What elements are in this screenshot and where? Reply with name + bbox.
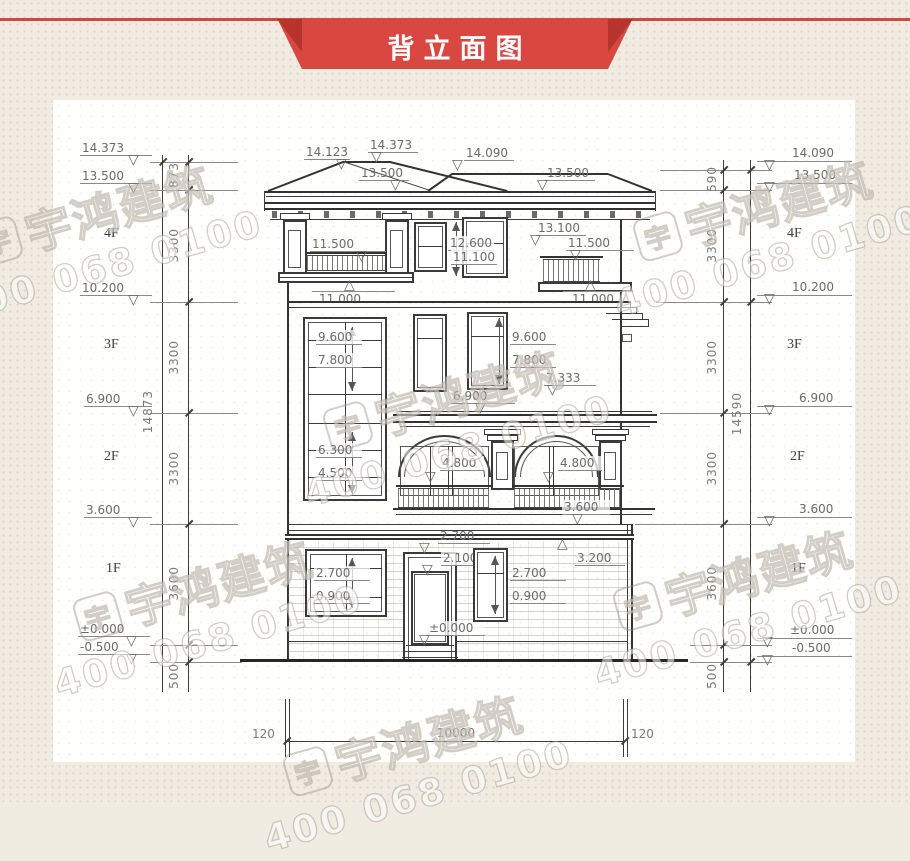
window-inner — [417, 318, 443, 388]
dim-value: 873 — [167, 162, 181, 188]
floor-label: 1F — [106, 561, 121, 577]
level-label: 3.200 — [575, 551, 625, 566]
dim-line — [287, 741, 625, 742]
level-label: 13.100 — [536, 221, 586, 236]
floor-label: 2F — [790, 449, 805, 465]
arrow-up-icon — [491, 556, 499, 565]
level-triangle-icon — [762, 654, 773, 666]
level-label: 0.900 — [314, 589, 370, 604]
eave-dentils — [272, 211, 648, 218]
level-label: 4.500 — [316, 466, 362, 481]
dim-line — [188, 155, 189, 692]
pillar-panel — [604, 452, 616, 480]
extension-line — [627, 699, 628, 757]
level-triangle-icon — [537, 179, 548, 191]
column-panel — [288, 230, 301, 268]
level-label: 2.700 — [314, 566, 370, 581]
floor-band — [287, 301, 621, 303]
dim-value: 120 — [631, 727, 654, 741]
level-triangle-icon — [764, 515, 775, 527]
level-triangle-icon — [128, 154, 139, 166]
level-triangle-icon — [425, 471, 436, 483]
level-label: -0.500 — [790, 641, 833, 656]
dim-value: 120 — [252, 727, 275, 741]
level-label: 9.600 — [510, 330, 556, 345]
eave-edge — [655, 191, 656, 211]
level-label: 13.500 — [359, 166, 409, 181]
level-triangle-icon — [419, 634, 430, 646]
level-label: 10.200 — [790, 280, 836, 295]
dim-value: 590 — [705, 166, 719, 192]
window-transom — [417, 338, 443, 339]
dim-line — [162, 155, 163, 692]
page-title: 背立面图 — [277, 27, 633, 66]
level-label: 14.090 — [790, 146, 836, 161]
level-triangle-icon — [475, 402, 486, 414]
level-line — [690, 645, 772, 646]
column-capital — [280, 213, 310, 220]
cornice-step — [612, 319, 649, 320]
level-label: 6.300 — [316, 443, 362, 458]
cornice-step — [595, 301, 631, 303]
level-triangle-icon — [128, 182, 139, 194]
arrow-down-icon — [452, 267, 460, 276]
level-triangle-icon — [764, 404, 775, 416]
level-line — [150, 413, 238, 414]
extension-line — [285, 699, 286, 757]
level-label: 2.700 — [510, 566, 566, 581]
level-label: 4.800 — [440, 456, 484, 471]
string-course — [288, 641, 628, 642]
level-label: 4.800 — [558, 456, 602, 471]
level-triangle-icon — [764, 293, 775, 305]
slab-line — [400, 426, 650, 427]
railing-rail — [396, 485, 491, 487]
dim-value: 500 — [167, 663, 181, 689]
dim-line — [750, 160, 751, 692]
level-label: 11.000 — [570, 292, 616, 307]
dim-value: 10000 — [287, 726, 625, 740]
ground-line — [240, 659, 688, 662]
dim-value: 3300 — [167, 228, 181, 263]
eave-line — [264, 191, 656, 193]
window-inner — [418, 226, 443, 268]
level-label: 7.800 — [316, 353, 362, 368]
slab-line — [398, 411, 652, 412]
column-panel — [390, 230, 403, 268]
column-capital — [382, 213, 412, 220]
level-label: 10.200 — [80, 281, 152, 296]
dim-value: 3300 — [705, 228, 719, 263]
window-transom — [477, 573, 504, 574]
eave-edge — [264, 191, 265, 211]
level-line — [150, 645, 238, 646]
eave-line — [270, 219, 650, 220]
level-label: 2.700 — [438, 529, 490, 544]
slab-line — [393, 508, 655, 510]
level-triangle-icon — [356, 250, 367, 262]
level-triangle-icon — [764, 181, 775, 193]
floor-label: 2F — [104, 449, 119, 465]
dim-value: 3300 — [167, 340, 181, 375]
level-label: 6.900 — [84, 392, 152, 407]
balcony-roof-slab — [393, 414, 657, 423]
arrow-down-icon — [491, 605, 499, 614]
level-line — [656, 302, 772, 303]
level-label: 7.800 — [510, 353, 556, 368]
level-label: 12.600 — [448, 236, 494, 251]
level-line — [150, 302, 238, 303]
dim-value: 3300 — [167, 451, 181, 486]
level-triangle-icon — [762, 636, 773, 648]
level-triangle-icon — [547, 384, 558, 396]
pillar-panel — [496, 452, 508, 480]
level-label: 3.600 — [84, 503, 152, 518]
dim-line — [723, 160, 724, 692]
level-label: 14.373 — [80, 141, 152, 156]
cornice-bracket — [622, 334, 632, 342]
level-label: 11.500 — [310, 237, 386, 252]
level-label: 13.500 — [792, 168, 838, 183]
level-label: 11.100 — [451, 250, 497, 265]
railing-rail — [512, 485, 624, 487]
cornice-step — [600, 307, 637, 308]
dim-value: 3600 — [167, 566, 181, 601]
cornice-step — [606, 313, 643, 314]
level-triangle-icon — [530, 234, 541, 246]
level-label: ±0.000 — [788, 623, 836, 638]
level-triangle-icon — [390, 179, 401, 191]
level-triangle-icon — [452, 159, 463, 171]
level-line — [690, 662, 772, 663]
level-triangle-icon — [764, 159, 775, 171]
wall-corner — [631, 524, 633, 661]
level-triangle-icon — [570, 249, 581, 261]
floor-label: 1F — [791, 561, 806, 577]
arrow-down-icon — [348, 382, 356, 391]
door-step — [404, 651, 456, 652]
floor-band — [287, 307, 621, 308]
watermark-logo-icon: 宇 — [0, 214, 25, 268]
level-label: 6.900 — [797, 391, 835, 406]
railing-rail — [305, 252, 387, 254]
level-triangle-icon — [371, 151, 382, 163]
eave-line — [266, 196, 654, 197]
level-triangle-icon — [126, 653, 137, 665]
level-label: ±0.000 — [427, 621, 485, 636]
railing — [398, 488, 489, 508]
window-transom — [418, 246, 443, 247]
dim-total: 14590 — [730, 392, 744, 435]
level-line — [150, 662, 242, 663]
level-triangle-icon — [128, 294, 139, 306]
level-label: 3.600 — [797, 502, 835, 517]
dim-value: 500 — [705, 663, 719, 689]
slab-line — [396, 514, 652, 515]
level-label: 11.000 — [317, 292, 363, 307]
level-line — [635, 524, 772, 525]
level-triangle-icon — [344, 279, 355, 291]
arrow-down-icon — [495, 375, 503, 384]
floor-label: 3F — [787, 337, 802, 353]
level-label: 9.600 — [316, 330, 362, 345]
eave-band — [264, 202, 656, 210]
level-label: -0.500 — [78, 640, 150, 655]
dim-value: 3300 — [705, 451, 719, 486]
dim-value: 3600 — [705, 566, 719, 601]
level-triangle-icon — [128, 516, 139, 528]
door-step — [406, 645, 454, 646]
level-triangle-icon — [585, 279, 596, 291]
level-line — [660, 413, 772, 414]
level-triangle-icon — [419, 542, 430, 554]
arrow-up-icon — [495, 318, 503, 327]
level-label: 0.900 — [510, 589, 566, 604]
level-label: 3.600 — [562, 500, 610, 515]
level-label: 13.500 — [80, 169, 152, 184]
arrow-up-icon — [452, 222, 460, 231]
cornice-step — [620, 326, 649, 327]
belt-line — [287, 524, 632, 525]
dim-value: 3300 — [705, 340, 719, 375]
floor-label: 4F — [787, 226, 802, 242]
level-line — [150, 524, 238, 525]
floor-label: 3F — [104, 337, 119, 353]
level-label: 14.090 — [464, 146, 514, 161]
level-triangle-icon — [128, 405, 139, 417]
level-triangle-icon — [543, 471, 554, 483]
floor-label: 4F — [104, 226, 119, 242]
level-triangle-icon — [336, 158, 347, 170]
arrow-down-icon — [348, 485, 356, 494]
level-label: 13.500 — [545, 166, 595, 181]
door-step — [402, 657, 458, 658]
railing — [307, 255, 385, 271]
level-triangle-icon — [422, 564, 433, 576]
page-background: 背立面图 宇宇鸿建筑 400 068 0100 宇宇鸿建筑 400 068 01… — [0, 0, 910, 802]
level-label: ±0.000 — [78, 622, 150, 637]
level-line — [150, 190, 238, 191]
arrow-up-icon — [348, 432, 356, 441]
level-triangle-icon — [557, 538, 568, 550]
